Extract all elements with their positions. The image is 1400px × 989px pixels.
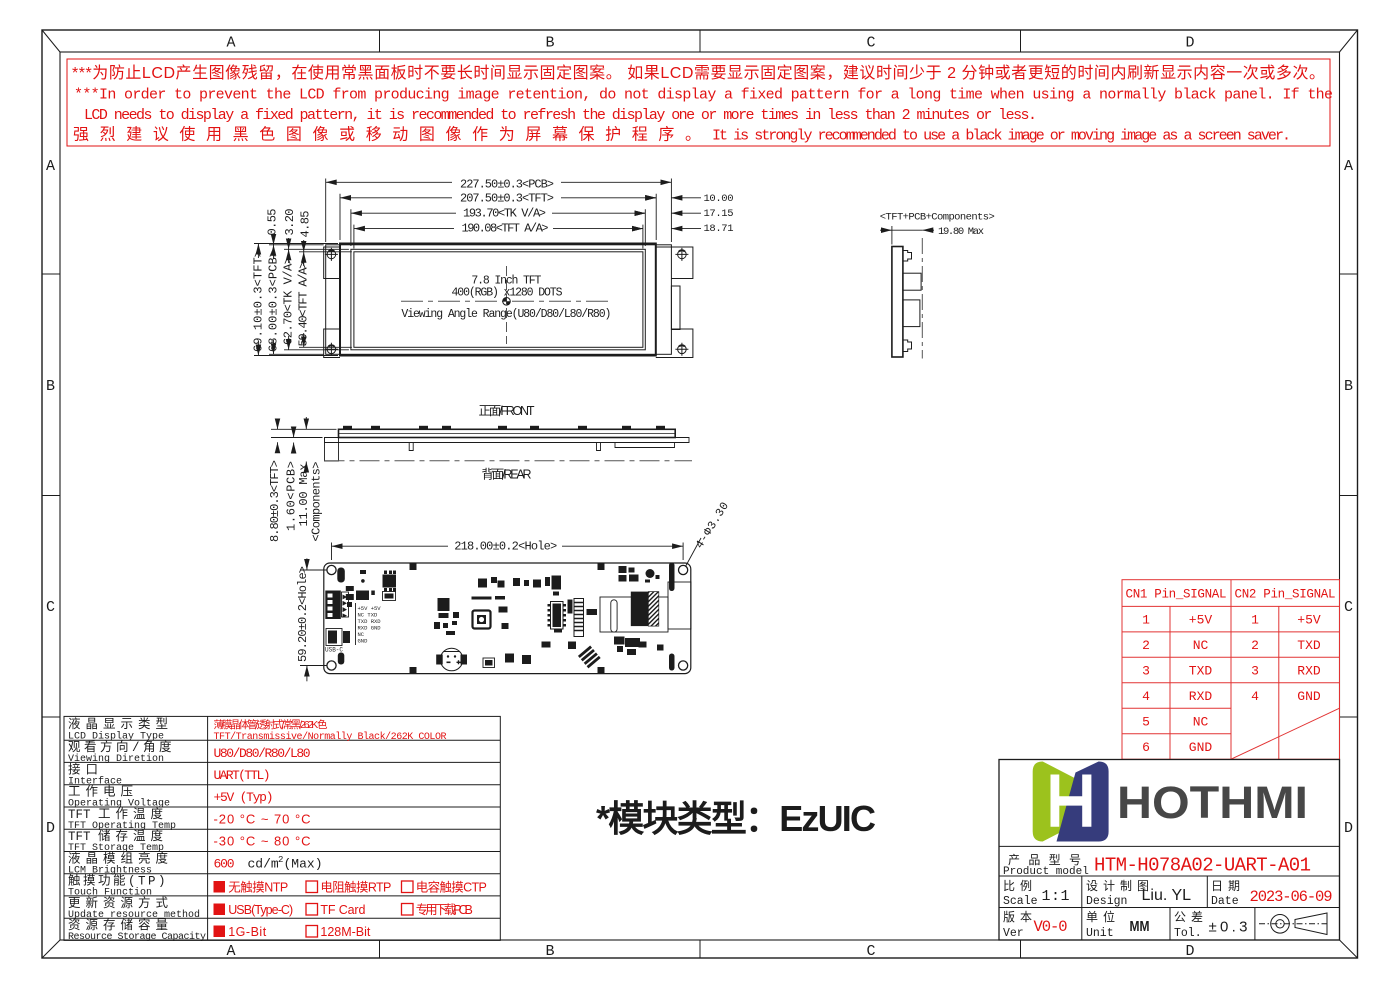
- svg-text:69.10±0.3<TFT>: 69.10±0.3<TFT>: [251, 250, 265, 352]
- svg-text:GND: GND: [1189, 740, 1213, 755]
- svg-text:D: D: [46, 820, 55, 837]
- svg-text:NC: NC: [1193, 715, 1209, 730]
- svg-text:HTM-H078A02-UART-A01: HTM-H078A02-UART-A01: [1094, 855, 1311, 877]
- svg-text:C: C: [1344, 599, 1353, 616]
- svg-text:190.08<TFT A/A>: 190.08<TFT A/A>: [462, 221, 549, 235]
- svg-text:***In order to prevent the LCD: ***In order to prevent the LCD from prod…: [74, 87, 1333, 104]
- svg-text:+5V (Typ): +5V (Typ): [214, 790, 274, 805]
- svg-text:4: 4: [1251, 689, 1259, 704]
- svg-text:3.20: 3.20: [283, 209, 297, 236]
- svg-text:LCD needs to display a fixed p: LCD needs to display a fixed pattern, it…: [84, 107, 1037, 124]
- svg-text:A: A: [226, 943, 235, 960]
- svg-text:8.80±0.3<TFT>: 8.80±0.3<TFT>: [268, 460, 282, 542]
- svg-text:10.00: 10.00: [704, 193, 734, 205]
- svg-text:B: B: [545, 35, 554, 52]
- svg-text:1: 1: [1142, 613, 1150, 628]
- svg-text:正面/FRONT: 正面/FRONT: [479, 404, 535, 418]
- svg-text:D: D: [1185, 35, 1194, 52]
- svg-text:UART(TTL): UART(TTL): [214, 768, 271, 783]
- svg-text:D: D: [1185, 943, 1194, 960]
- svg-text:Viewing Angle Range(U80/D80/L8: Viewing Angle Range(U80/D80/L80/R80): [401, 308, 611, 321]
- svg-text:C: C: [866, 943, 875, 960]
- svg-text:*模块类型：EzUIC: *模块类型：EzUIC: [596, 798, 876, 839]
- svg-text:4.85: 4.85: [298, 211, 312, 238]
- svg-text:Ver: Ver: [1003, 927, 1024, 940]
- svg-text:薄膜晶体管/透射式/常黑/262K 色: 薄膜晶体管/透射式/常黑/262K 色: [214, 718, 329, 731]
- svg-text:18.71: 18.71: [704, 223, 734, 235]
- svg-text:3: 3: [1142, 664, 1150, 679]
- svg-text:(Max): (Max): [284, 857, 323, 872]
- svg-text:207.50±0.3<TFT>: 207.50±0.3<TFT>: [460, 192, 554, 206]
- svg-text:1G-Bit: 1G-Bit: [228, 925, 267, 939]
- svg-text:<Components>: <Components>: [310, 462, 324, 542]
- svg-text:TXD: TXD: [1297, 638, 1321, 653]
- svg-text:62.70<TK V/A>: 62.70<TK V/A>: [282, 257, 296, 345]
- svg-text:0.55: 0.55: [266, 209, 280, 236]
- svg-text:MM: MM: [1130, 918, 1150, 935]
- svg-text:C: C: [46, 599, 55, 616]
- svg-text:无触摸NTP: 无触摸NTP: [228, 881, 288, 895]
- svg-text:Scale: Scale: [1003, 895, 1038, 908]
- svg-text:3: 3: [1251, 664, 1259, 679]
- svg-text:Liu. YL: Liu. YL: [1142, 887, 1192, 904]
- svg-text:400(RGB) x1280 DOTS: 400(RGB) x1280 DOTS: [452, 287, 563, 300]
- svg-text:-30 °C ~ 80 °C: -30 °C ~ 80 °C: [214, 834, 311, 849]
- svg-text:19.80 Max: 19.80 Max: [938, 226, 984, 238]
- svg-text:Touch Function: Touch Function: [68, 887, 152, 899]
- svg-text:版本: 版本: [1003, 910, 1037, 924]
- svg-text:GND: GND: [358, 638, 369, 645]
- svg-text:6: 6: [1142, 740, 1150, 755]
- svg-text:日期: 日期: [1211, 879, 1245, 893]
- svg-text:B: B: [46, 378, 55, 395]
- svg-text:公差: 公差: [1174, 910, 1208, 924]
- svg-text:128M-Bit: 128M-Bit: [320, 925, 371, 939]
- svg-text:±0.3: ±0.3: [1209, 919, 1248, 936]
- svg-text:B: B: [545, 943, 554, 960]
- svg-text:4: 4: [1142, 689, 1150, 704]
- svg-text:Date: Date: [1211, 895, 1239, 908]
- svg-text:B: B: [1344, 378, 1353, 395]
- svg-text:59.40<TFT A/A>: 59.40<TFT A/A>: [297, 262, 311, 347]
- svg-text:比例: 比例: [1003, 879, 1037, 893]
- svg-text:-20 °C ~ 70 °C: -20 °C ~ 70 °C: [214, 812, 311, 827]
- svg-text:Interface: Interface: [68, 776, 122, 788]
- svg-text:5: 5: [1142, 715, 1150, 730]
- svg-text:RXD: RXD: [1297, 664, 1321, 679]
- svg-text:A: A: [46, 158, 55, 175]
- svg-text:TXD: TXD: [1189, 664, 1213, 679]
- svg-text:专用下载PCB: 专用下载PCB: [416, 902, 473, 917]
- svg-text:Update resource method: Update resource method: [68, 909, 200, 921]
- svg-text:电容触摸CTP: 电容触摸CTP: [416, 880, 487, 895]
- svg-text:17.15: 17.15: [704, 208, 734, 220]
- svg-text:TFT Storage Temp: TFT Storage Temp: [68, 843, 164, 854]
- svg-text:218.00±0.2<Hole>: 218.00±0.2<Hole>: [454, 540, 557, 554]
- svg-text:CN1 Pin_SIGNAL: CN1 Pin_SIGNAL: [1126, 588, 1227, 602]
- svg-text:2: 2: [1251, 638, 1259, 653]
- svg-text:电阻触摸RTP: 电阻触摸RTP: [320, 881, 391, 895]
- svg-text:USB(Type-C): USB(Type-C): [228, 903, 293, 917]
- svg-text:cd/m: cd/m: [248, 857, 279, 872]
- svg-text:C: C: [866, 35, 875, 52]
- svg-text:RXD: RXD: [1189, 689, 1213, 704]
- svg-text:193.70<TK V/A>: 193.70<TK V/A>: [463, 206, 546, 220]
- svg-text:GND: GND: [1297, 689, 1321, 704]
- svg-text:68.00±0.3<PCB>: 68.00±0.3<PCB>: [267, 250, 281, 352]
- svg-text:液晶显示类型: 液晶显示类型: [68, 716, 173, 732]
- svg-text:600: 600: [214, 857, 235, 872]
- svg-text:227.50±0.3<PCB>: 227.50±0.3<PCB>: [460, 178, 554, 192]
- svg-text:USB-C: USB-C: [325, 647, 343, 654]
- svg-text:CN2 Pin_SIGNAL: CN2 Pin_SIGNAL: [1235, 588, 1336, 602]
- svg-text:A: A: [1344, 158, 1353, 175]
- svg-text:LCD Display Type: LCD Display Type: [68, 731, 164, 743]
- svg-text:U80/D80/R80/L80: U80/D80/R80/L80: [214, 746, 311, 761]
- svg-text:产 品 型 号: 产 品 型 号: [1008, 853, 1084, 867]
- svg-text:+5V: +5V: [1297, 613, 1321, 628]
- svg-text:<TFT+PCB+Components>: <TFT+PCB+Components>: [880, 212, 995, 224]
- svg-text:TFT/Transmissive/Normally Blac: TFT/Transmissive/Normally Black/262K COL…: [214, 731, 447, 743]
- svg-text:A: A: [226, 35, 235, 52]
- svg-text:Resource Storage Capacity: Resource Storage Capacity: [68, 931, 206, 943]
- svg-text:Tol.: Tol.: [1174, 927, 1202, 940]
- svg-text:59.20±0.2<Hole>: 59.20±0.2<Hole>: [296, 566, 310, 662]
- svg-text:LCM Brightness: LCM Brightness: [68, 865, 152, 877]
- svg-text:+5V: +5V: [1189, 613, 1213, 628]
- svg-text:单位: 单位: [1086, 909, 1120, 924]
- svg-text:Product model: Product model: [1003, 866, 1089, 878]
- svg-text:Viewing Diretion: Viewing Diretion: [68, 753, 164, 765]
- svg-text:2: 2: [1142, 638, 1150, 653]
- svg-text:Operating Voltage: Operating Voltage: [68, 798, 170, 810]
- svg-text:2023-06-09: 2023-06-09: [1250, 888, 1333, 906]
- svg-text:***为防止LCD产生图像残留，在使用常黑面板时不要长时间显: ***为防止LCD产生图像残留，在使用常黑面板时不要长时间显示固定图案。 如果L…: [72, 64, 1325, 82]
- svg-text:Unit: Unit: [1086, 927, 1114, 940]
- svg-text:1: 1: [1251, 613, 1259, 628]
- svg-text:TFT Operating Temp: TFT Operating Temp: [68, 820, 176, 832]
- svg-text:D: D: [1344, 820, 1353, 837]
- svg-text:V0-0: V0-0: [1034, 918, 1068, 936]
- svg-text:NC: NC: [1193, 638, 1209, 653]
- svg-text:Design: Design: [1086, 895, 1127, 908]
- svg-text:1:1: 1:1: [1042, 888, 1070, 905]
- svg-text:TF Card: TF Card: [320, 903, 365, 917]
- svg-text:HOTHMI: HOTHMI: [1117, 777, 1308, 828]
- svg-text:背面/REAR: 背面/REAR: [482, 468, 532, 482]
- svg-text:It is strongly recommended to: It is strongly recommended to use a blac…: [712, 128, 1291, 145]
